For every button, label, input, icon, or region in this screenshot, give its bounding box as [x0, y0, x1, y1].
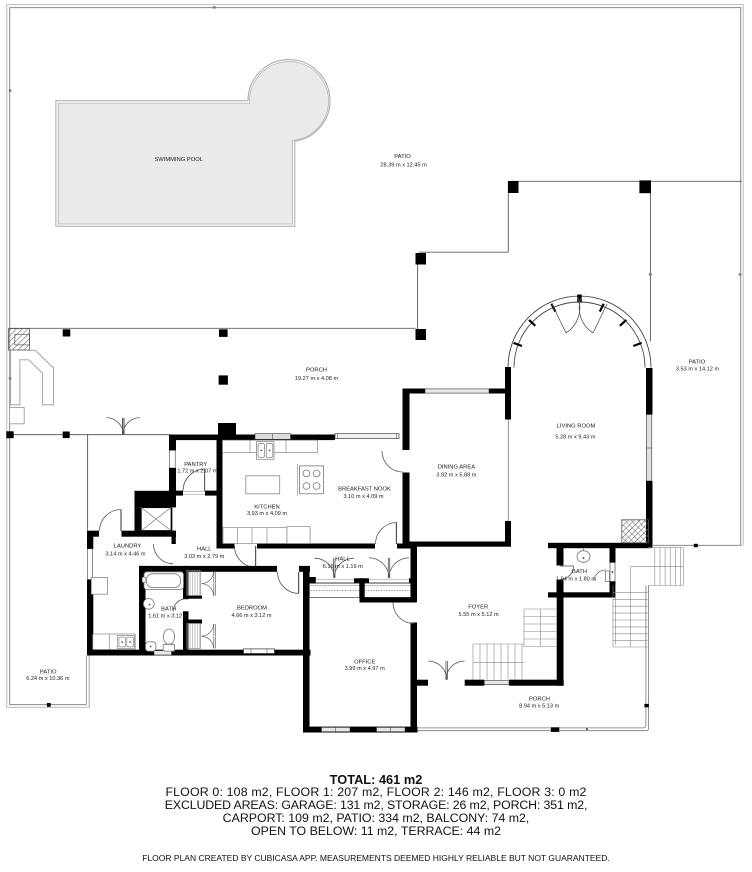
svg-text:5.55 m x 5.12 m: 5.55 m x 5.12 m [459, 612, 499, 618]
svg-text:KITCHEN: KITCHEN [254, 505, 279, 511]
svg-text:6.24 m x 10.36 m: 6.24 m x 10.36 m [26, 676, 70, 682]
svg-text:PATIO: PATIO [394, 154, 411, 160]
svg-text:5.28 m x 9.43 m: 5.28 m x 9.43 m [555, 434, 595, 440]
svg-text:3.99 m x 4.97 m: 3.99 m x 4.97 m [345, 666, 385, 672]
svg-text:8.94 m x 5.13 m: 8.94 m x 5.13 m [519, 704, 559, 710]
svg-text:DINING AREA: DINING AREA [438, 464, 475, 470]
svg-text:6.16 m x 1.19 m: 6.16 m x 1.19 m [323, 564, 363, 570]
svg-text:3.10 m x 4.09 m: 3.10 m x 4.09 m [343, 494, 383, 500]
svg-text:HALL: HALL [197, 546, 212, 552]
svg-text:HALL: HALL [335, 557, 350, 563]
svg-text:PANTRY: PANTRY [184, 462, 207, 468]
svg-text:3.03 m x 2.79 m: 3.03 m x 2.79 m [184, 554, 224, 560]
svg-text:4.66 m x 3.12 m: 4.66 m x 3.12 m [231, 613, 271, 619]
svg-text:19.27 m x 4.08 m: 19.27 m x 4.08 m [295, 376, 339, 382]
svg-text:28.39 m x 12.45 m: 28.39 m x 12.45 m [380, 162, 427, 168]
svg-text:BEDROOM: BEDROOM [237, 605, 267, 611]
svg-text:PORCH: PORCH [529, 697, 550, 703]
svg-text:3.14 m x 4.46 m: 3.14 m x 4.46 m [105, 551, 145, 557]
svg-text:3.53 m x 14.12 m: 3.53 m x 14.12 m [676, 367, 720, 373]
svg-text:BREAKFAST NOOK: BREAKFAST NOOK [338, 487, 391, 493]
svg-text:SWIMMING POOL: SWIMMING POOL [154, 157, 203, 163]
svg-text:PATIO: PATIO [40, 670, 57, 676]
svg-text:BATH: BATH [161, 607, 176, 613]
svg-text:LIVING ROOM: LIVING ROOM [557, 423, 596, 429]
svg-text:1.72 m x 2.07 m: 1.72 m x 2.07 m [177, 468, 217, 474]
svg-text:1.61 m x 3.12 m: 1.61 m x 3.12 m [148, 614, 188, 620]
svg-text:PATIO: PATIO [689, 360, 706, 366]
svg-text:FOYER: FOYER [468, 605, 488, 611]
svg-text:3.93 m x 4.09 m: 3.93 m x 4.09 m [247, 511, 287, 517]
svg-text:PORCH: PORCH [306, 368, 327, 374]
svg-text:LAUNDRY: LAUNDRY [114, 544, 142, 550]
svg-text:OFFICE: OFFICE [354, 660, 375, 666]
svg-text:3.92 m x 5.88 m: 3.92 m x 5.88 m [436, 473, 476, 479]
svg-text:1.94 m x 1.80 m: 1.94 m x 1.80 m [556, 576, 596, 582]
svg-text:BATH: BATH [572, 569, 587, 575]
